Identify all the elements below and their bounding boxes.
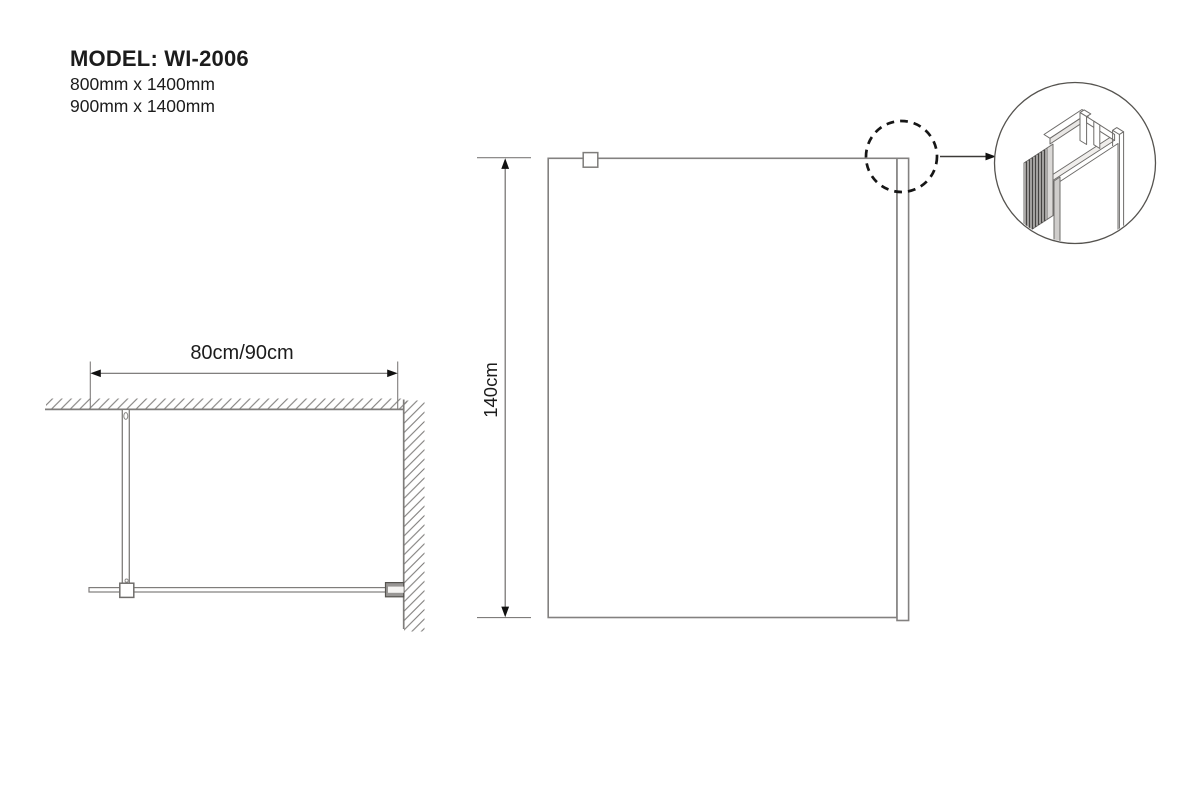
technical-drawing	[0, 0, 1200, 800]
dimension-arrow-down	[501, 607, 509, 618]
plan-support-bar-screw	[124, 413, 128, 420]
dimension-arrow-left	[90, 370, 101, 378]
plan-view	[45, 362, 425, 632]
detail-glass-edge	[1054, 177, 1060, 244]
front-view	[477, 153, 909, 621]
plan-back-wall-hatch	[46, 399, 407, 410]
spec-sheet-page: MODEL: WI-2006 800mm x 1400mm 900mm x 14…	[0, 0, 1200, 800]
dimension-arrow-right	[387, 370, 398, 378]
plan-side-wall-hatch	[404, 401, 425, 632]
size-option-2: 900mm x 1400mm	[70, 98, 215, 116]
size-option-1: 800mm x 1400mm	[70, 76, 215, 94]
plan-bar-connector	[120, 583, 134, 597]
width-dimension-label: 80cm/90cm	[190, 343, 293, 363]
plan-support-bar	[122, 409, 129, 583]
front-glass-panel	[548, 158, 897, 617]
front-support-bar-clamp	[583, 153, 598, 168]
model-title: MODEL: WI-2006	[70, 48, 249, 70]
dimension-arrow-up	[501, 158, 509, 169]
height-dimension-label: 140cm	[482, 362, 501, 418]
detail-callout	[866, 83, 1156, 245]
plan-wall-profile-bracket	[386, 583, 404, 597]
front-wall-profile	[897, 158, 909, 620]
